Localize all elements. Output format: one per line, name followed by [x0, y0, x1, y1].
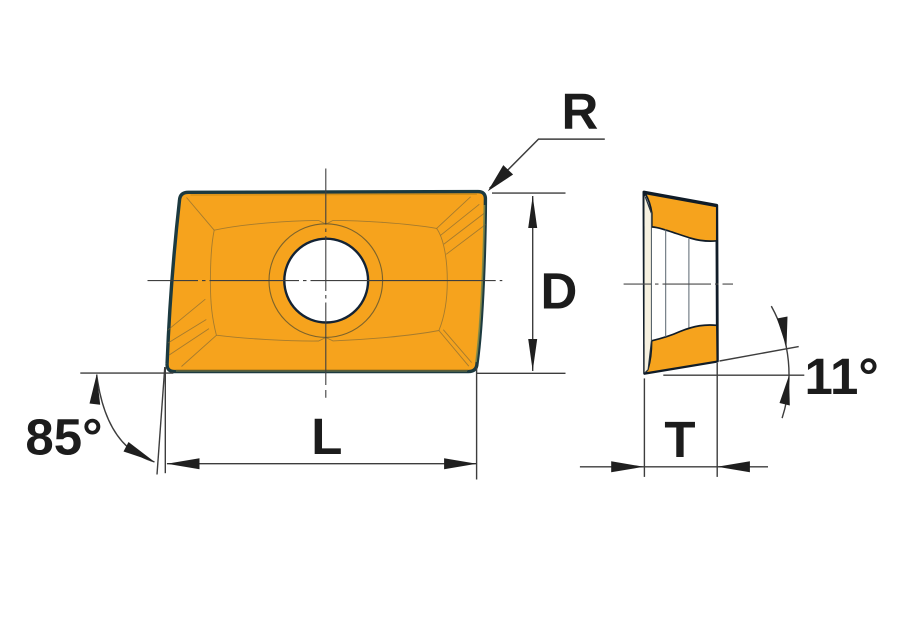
svg-text:L: L: [311, 408, 342, 465]
svg-text:D: D: [541, 262, 578, 319]
svg-text:T: T: [664, 411, 695, 468]
svg-text:R: R: [562, 83, 599, 140]
svg-text:11°: 11°: [805, 348, 879, 405]
svg-text:85°: 85°: [25, 409, 102, 466]
